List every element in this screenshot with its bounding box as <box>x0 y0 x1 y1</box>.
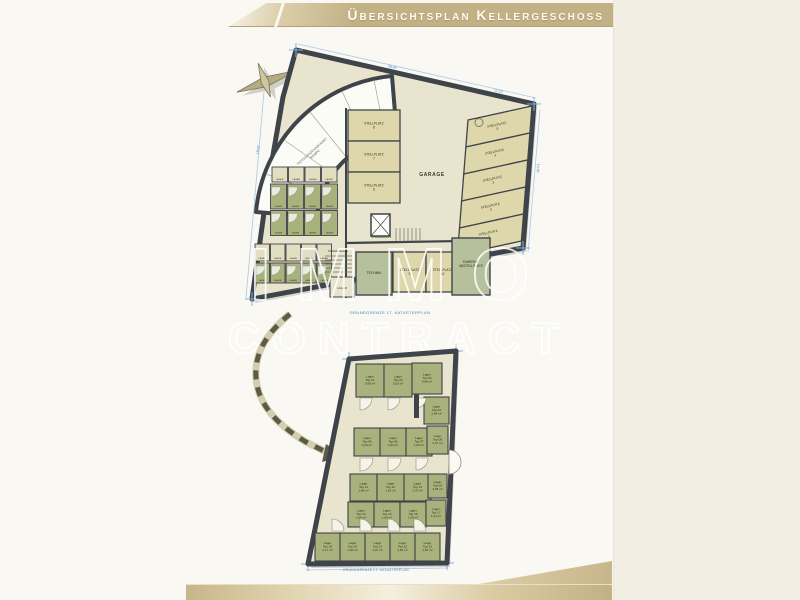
svg-text:LagerTop 131,70 m²: LagerTop 131,70 m² <box>412 482 422 493</box>
lager-room: LagerTop 192,17 m² <box>315 533 340 561</box>
watermark: IMMO CONTRACT <box>228 233 571 363</box>
storage-cell: LAGER <box>305 167 321 182</box>
storage-cell: LAGER <box>322 211 338 236</box>
garage-label: GARAGE <box>419 172 445 178</box>
floor-plan-canvas: TIEFGARAGENABFAHRT RAMPE GARAGE STELLPLA… <box>0 0 800 600</box>
lager-room: LagerTop 221,81 m² <box>390 533 415 561</box>
storage-cell: LAGER <box>305 211 321 236</box>
storage-cell: LAGER <box>271 211 287 236</box>
lager-room: LagerTop 211,37 m² <box>365 533 390 561</box>
parking-spot: STELLPLATZ7 <box>348 141 400 172</box>
svg-text:LagerTop 033,99 m²: LagerTop 033,99 m² <box>422 373 432 384</box>
svg-text:LagerTop 121,62 m²: LagerTop 121,62 m² <box>385 482 395 493</box>
svg-text:LagerTop 023,53 m²: LagerTop 023,53 m² <box>393 375 403 386</box>
svg-text:LagerTop 171,44 m²: LagerTop 171,44 m² <box>431 507 441 518</box>
lager-room: LagerTop 131,70 m² <box>404 474 431 501</box>
svg-text:LAGER: LAGER <box>326 205 334 208</box>
svg-text:LagerTop 091,95 m²: LagerTop 091,95 m² <box>432 480 442 491</box>
corridor-wall-stub <box>414 394 419 418</box>
lager-room: LagerTop 082,37 m² <box>427 426 448 454</box>
lager-room: LagerTop 231,82 m² <box>415 533 440 561</box>
lager-room: LagerTop 171,44 m² <box>426 500 446 526</box>
dim-right: 14,30 <box>536 164 541 173</box>
parking-left: STELLPLATZ8STELLPLATZ7STELLPLATZ6 <box>348 110 400 203</box>
svg-text:LAGER: LAGER <box>276 178 284 181</box>
svg-text:LagerTop 051,64 m²: LagerTop 051,64 m² <box>362 436 372 447</box>
storage-cell: LAGER <box>272 167 288 182</box>
svg-text:LagerTop 221,81 m²: LagerTop 221,81 m² <box>397 541 407 552</box>
parking-spot: STELLPLATZ6 <box>348 172 400 203</box>
svg-text:LagerTop 211,37 m²: LagerTop 211,37 m² <box>372 541 382 552</box>
svg-text:LAGER: LAGER <box>309 178 317 181</box>
svg-text:LagerTop 042,64 m²: LagerTop 042,64 m² <box>431 405 441 416</box>
watermark-immo: IMMO <box>250 233 555 316</box>
storage-cell: LAGER <box>288 211 304 236</box>
storage-cell: LAGER <box>322 167 338 182</box>
storage-cell: LAGER <box>289 167 305 182</box>
entry-door-arc <box>449 450 461 474</box>
storage-cell: LAGER <box>271 184 287 209</box>
svg-text:LAGER: LAGER <box>275 205 283 208</box>
svg-text:LagerTop 151,60 m²: LagerTop 151,60 m² <box>382 509 392 520</box>
storage-cell: LAGER <box>288 184 304 209</box>
lager-room: LagerTop 023,53 m² <box>384 364 412 397</box>
small-plan-boundary-label: GRUNDGRENZE LT. KATASTERPLAN <box>343 568 409 572</box>
svg-text:LagerTop 082,37 m²: LagerTop 082,37 m² <box>432 434 442 445</box>
svg-text:LagerTop 201,96 m²: LagerTop 201,96 m² <box>347 541 357 552</box>
parking-spot: STELLPLATZ8 <box>348 110 400 141</box>
svg-text:LAGER: LAGER <box>293 178 301 181</box>
svg-text:LagerTop 161,63 m²: LagerTop 161,63 m² <box>408 509 418 520</box>
lager-room: LagerTop 033,99 m² <box>412 363 442 394</box>
svg-text:LagerTop 231,82 m²: LagerTop 231,82 m² <box>422 541 432 552</box>
svg-text:LagerTop 141,66 m²: LagerTop 141,66 m² <box>356 509 366 520</box>
svg-text:LagerTop 013,99 m²: LagerTop 013,99 m² <box>365 375 375 386</box>
lager-room: LagerTop 013,99 m² <box>356 364 384 397</box>
dim-left: 19,62 <box>255 145 260 154</box>
small-plan: LagerTop 013,99 m²LagerTop 023,53 m²Lage… <box>308 351 461 568</box>
svg-text:LagerTop 111,69 m²: LagerTop 111,69 m² <box>358 482 368 493</box>
storage-cell: LAGER <box>305 184 321 209</box>
storage-cell: LAGER <box>322 184 338 209</box>
lager-room: LagerTop 091,95 m² <box>428 474 447 498</box>
lager-room: LagerTop 061,64 m² <box>380 428 406 456</box>
lager-room: LagerTop 042,64 m² <box>424 397 449 424</box>
svg-text:LagerTop 061,64 m²: LagerTop 061,64 m² <box>388 436 398 447</box>
svg-text:LagerTop 071,64 m²: LagerTop 071,64 m² <box>414 436 424 447</box>
lager-room: LagerTop 051,64 m² <box>354 428 380 456</box>
plan-sheet: Übersichtsplan Kellergeschoss <box>0 0 800 600</box>
lager-room: LagerTop 121,62 m² <box>377 474 404 501</box>
svg-text:LAGER: LAGER <box>326 178 334 181</box>
lager-room: LagerTop 111,69 m² <box>350 474 377 501</box>
lager-room: LagerTop 201,96 m² <box>340 533 365 561</box>
svg-text:LAGER: LAGER <box>309 205 317 208</box>
svg-text:LagerTop 192,17 m²: LagerTop 192,17 m² <box>322 541 332 552</box>
svg-text:LAGER: LAGER <box>292 205 300 208</box>
